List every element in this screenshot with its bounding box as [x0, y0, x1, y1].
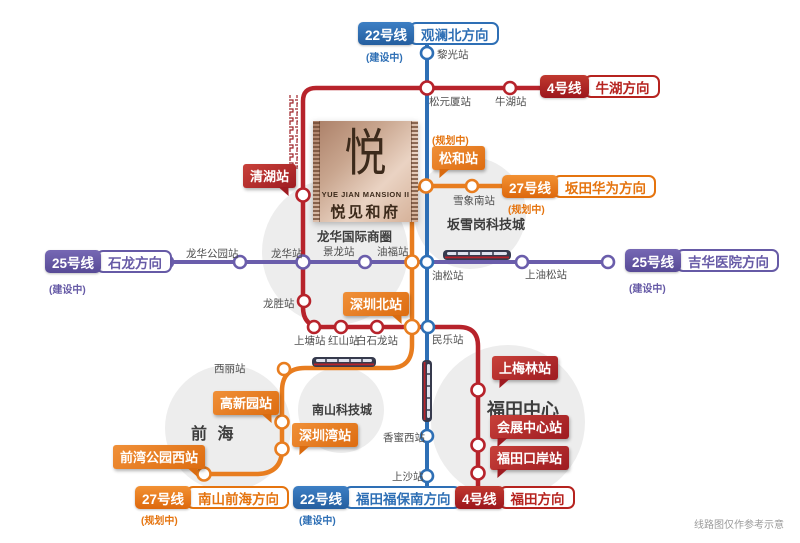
ornament-strip-icon	[313, 121, 320, 222]
callout-label: 前湾公园西站	[120, 450, 198, 465]
station-marker	[421, 47, 433, 59]
area-label-banxuegang: 坂雪岗科技城	[447, 214, 525, 233]
callout-shenzhen-bay-station: 深圳湾站	[292, 423, 358, 447]
station-label-xiangmixi: 香蜜西站	[383, 430, 425, 445]
direction-label: 观澜北方向	[409, 22, 499, 45]
line-badge-4-futian: 4号线 福田方向	[455, 486, 575, 509]
station-label-longsheng: 龙胜站	[263, 296, 295, 311]
line-badge-22-guanlanbei: 22号线 观澜北方向	[358, 22, 499, 45]
station-marker	[278, 363, 290, 375]
station-marker	[472, 439, 485, 452]
property-card: 悦 YUE JIAN MANSION II 悦见和府	[313, 121, 418, 222]
callout-label: 松和站	[439, 151, 478, 166]
direction-label: 南山前海方向	[186, 486, 289, 509]
status-under-construction: (建设中)	[49, 281, 86, 296]
station-marker	[420, 180, 433, 193]
status-planned: (规划中)	[432, 132, 469, 147]
property-name-cn: 悦见和府	[330, 201, 400, 222]
callout-qianwan-park-west-station: 前湾公园西站	[113, 445, 205, 469]
line-25-pill: 25号线	[45, 250, 101, 273]
direction-label: 坂田华为方向	[553, 175, 656, 198]
station-label-songyuanxia: 松元厦站	[429, 94, 471, 109]
station-marker	[466, 180, 478, 192]
station-label-youfu: 油福站	[377, 244, 409, 259]
station-label-longhua: 龙华站	[271, 246, 303, 261]
station-label-shang-yousong: 上油松站	[525, 267, 567, 282]
direction-label: 石龙方向	[96, 250, 172, 273]
status-under-construction: (建设中)	[629, 280, 666, 295]
callout-label: 上梅林站	[499, 361, 551, 376]
callout-label: 深圳北站	[350, 297, 402, 312]
train-icon	[443, 250, 511, 260]
line-22-pill: 22号线	[358, 22, 414, 45]
station-label-shangtang: 上塘站	[294, 333, 326, 348]
station-label-longhua-park: 龙华公园站	[186, 246, 239, 261]
station-label-shangsha: 上沙站	[392, 469, 424, 484]
line-badge-27-bantian: 27号线 坂田华为方向	[502, 175, 656, 198]
direction-label: 福田方向	[499, 486, 575, 509]
callout-convention-center-station: 会展中心站	[490, 415, 569, 439]
line-27-pill: 27号线	[135, 486, 191, 509]
line-badge-25-jihua: 25号线 吉华医院方向	[625, 249, 779, 272]
direction-label: 牛湖方向	[584, 75, 660, 98]
station-marker	[298, 295, 310, 307]
station-marker	[504, 82, 516, 94]
callout-qinghu-station: 清湖站	[243, 164, 296, 188]
map-disclaimer: 线路图仅作参考示意	[694, 516, 784, 531]
line-badge-22-futianfubaonan: 22号线 福田福保南方向	[293, 486, 461, 509]
station-marker	[308, 321, 320, 333]
station-marker	[421, 82, 434, 95]
callout-songhe-station: 松和站	[432, 146, 485, 170]
station-marker	[276, 443, 289, 456]
status-under-construction: (建设中)	[366, 49, 403, 64]
area-label-qianhai: 前 海	[191, 420, 236, 444]
callout-label: 清湖站	[250, 169, 289, 184]
station-label-minle: 民乐站	[432, 332, 464, 347]
area-label-nanshan-tech: 南山科技城	[312, 401, 372, 418]
station-label-liguang: 黎光站	[437, 47, 469, 62]
station-label-baishilong: 白石龙站	[356, 333, 398, 348]
station-marker	[472, 384, 485, 397]
station-label-hongshan: 红山站	[328, 333, 360, 348]
ornament-strip-icon	[411, 121, 418, 222]
line-22-pill: 22号线	[293, 486, 349, 509]
station-label-jinglong: 景龙站	[323, 244, 355, 259]
station-marker	[602, 256, 614, 268]
fret-pattern-decoration	[289, 95, 298, 169]
station-label-xuexiangnan: 雪象南站	[453, 193, 495, 208]
property-name-en: YUE JIAN MANSION II	[322, 190, 410, 199]
line-badge-25-shilong: 25号线 石龙方向	[45, 250, 172, 273]
station-marker	[472, 467, 485, 480]
shenzhen-north-marker	[405, 320, 419, 334]
station-marker	[359, 256, 371, 268]
status-under-construction: (建设中)	[299, 512, 336, 527]
station-marker	[421, 256, 433, 268]
callout-gaoxinyuan-station: 高新园站	[213, 391, 279, 415]
property-logo-icon: 悦	[344, 122, 386, 188]
status-planned: (规划中)	[508, 201, 545, 216]
direction-label: 福田福保南方向	[344, 486, 461, 509]
line-badge-4-niuhu: 4号线 牛湖方向	[540, 75, 660, 98]
callout-label: 福田口岸站	[497, 451, 562, 466]
metro-map-canvas: 悦 YUE JIAN MANSION II 悦见和府 22号线 观澜北方向 (建…	[0, 0, 800, 543]
status-planned: (规划中)	[141, 512, 178, 527]
line-badge-27-nanshan: 27号线 南山前海方向	[135, 486, 289, 509]
station-marker	[276, 416, 289, 429]
line-25-pill: 25号线	[625, 249, 681, 272]
line-27-pill: 27号线	[502, 175, 558, 198]
station-marker	[371, 321, 383, 333]
station-marker	[297, 189, 310, 202]
line-4-pill: 4号线	[540, 75, 589, 98]
train-icon	[312, 357, 376, 367]
callout-label: 高新园站	[220, 396, 272, 411]
line-4-pill: 4号线	[455, 486, 504, 509]
area-label-longhua-cbd: 龙华国际商圈	[317, 226, 392, 245]
station-marker	[335, 321, 347, 333]
station-label-xili: 西丽站	[214, 361, 246, 376]
callout-shangmeilin-station: 上梅林站	[492, 356, 558, 380]
callout-shenzhen-north-station: 深圳北站	[343, 292, 409, 316]
station-label-niuhu: 牛湖站	[495, 94, 527, 109]
callout-futian-checkpoint-station: 福田口岸站	[490, 446, 569, 470]
station-label-yousong: 油松站	[432, 268, 464, 283]
train-icon	[422, 360, 432, 422]
callout-label: 会展中心站	[497, 420, 562, 435]
direction-label: 吉华医院方向	[676, 249, 779, 272]
callout-label: 深圳湾站	[299, 428, 351, 443]
